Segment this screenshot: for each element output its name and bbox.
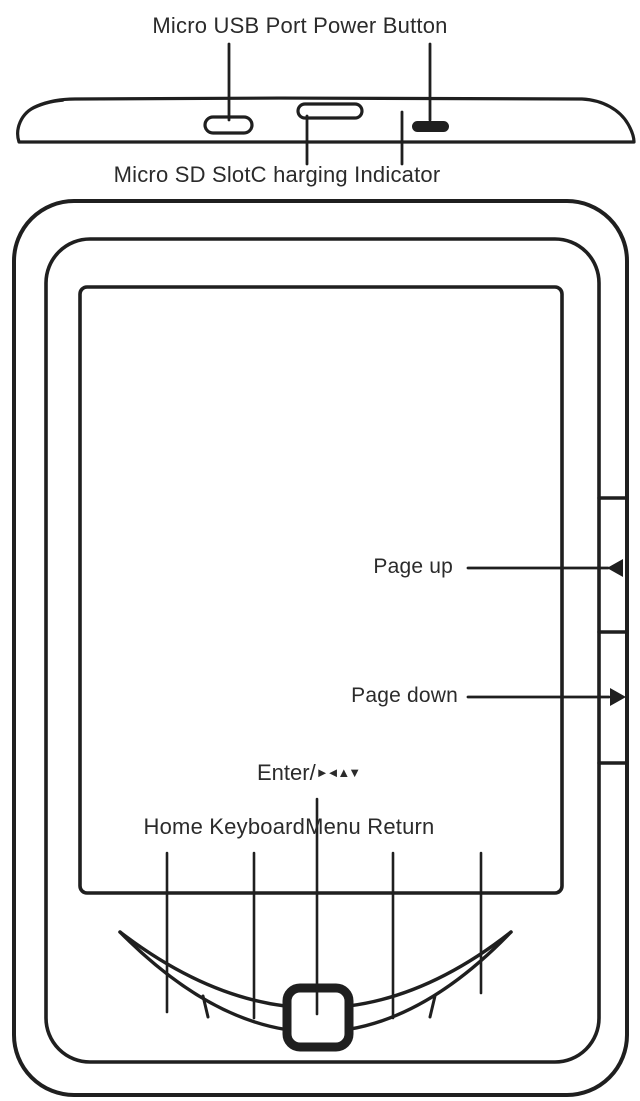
- label-micro-sd-slot-charging-indicator: Micro SD SlotC harging Indicator: [77, 162, 477, 188]
- enter-label-text: Enter/: [257, 760, 316, 785]
- label-home-keyboard-menu-return: Home KeyboardMenu Return: [108, 814, 470, 840]
- power-button: [412, 121, 449, 132]
- ereader-diagram-page: Micro USB Port Power Button Micro SD Slo…: [0, 0, 640, 1101]
- label-micro-usb-port-power-button: Micro USB Port Power Button: [100, 13, 500, 39]
- label-page-down: Page down: [300, 684, 458, 708]
- page-up-arrow-icon: [607, 559, 623, 577]
- label-page-up: Page up: [300, 555, 453, 579]
- label-enter: Enter/►◄▲▼: [257, 760, 359, 786]
- screen: [80, 287, 562, 893]
- enter-direction-arrows-icon: ►◄▲▼: [316, 765, 359, 780]
- page-down-arrow-icon: [610, 688, 626, 706]
